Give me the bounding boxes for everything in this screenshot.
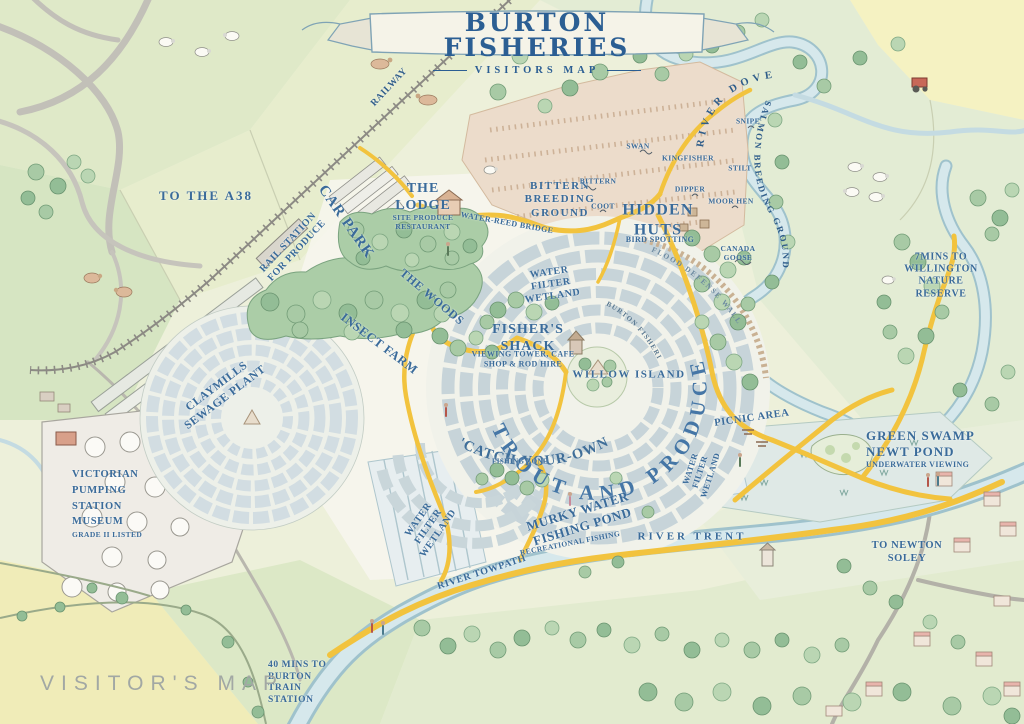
map-subtitle: VISITORS MAP xyxy=(475,65,600,76)
visitors-map-watermark: VISITOR'S MAP xyxy=(40,672,284,696)
burton-fisheries-visitors-map: TROUT AND PRODUCE 'CATCH-YOUR-OWN' RIVER… xyxy=(0,0,1024,724)
map-title: BURTON FISHERIES xyxy=(372,10,702,60)
title-banner: BURTON FISHERIES VISITORS MAP xyxy=(372,10,702,76)
subtitle-rule-right xyxy=(607,70,641,71)
insect-farm-spiral xyxy=(140,306,364,530)
map-artwork: TROUT AND PRODUCE 'CATCH-YOUR-OWN' RIVER… xyxy=(0,0,1024,724)
map-subtitle-row: VISITORS MAP xyxy=(372,65,702,76)
subtitle-rule-left xyxy=(433,70,467,71)
